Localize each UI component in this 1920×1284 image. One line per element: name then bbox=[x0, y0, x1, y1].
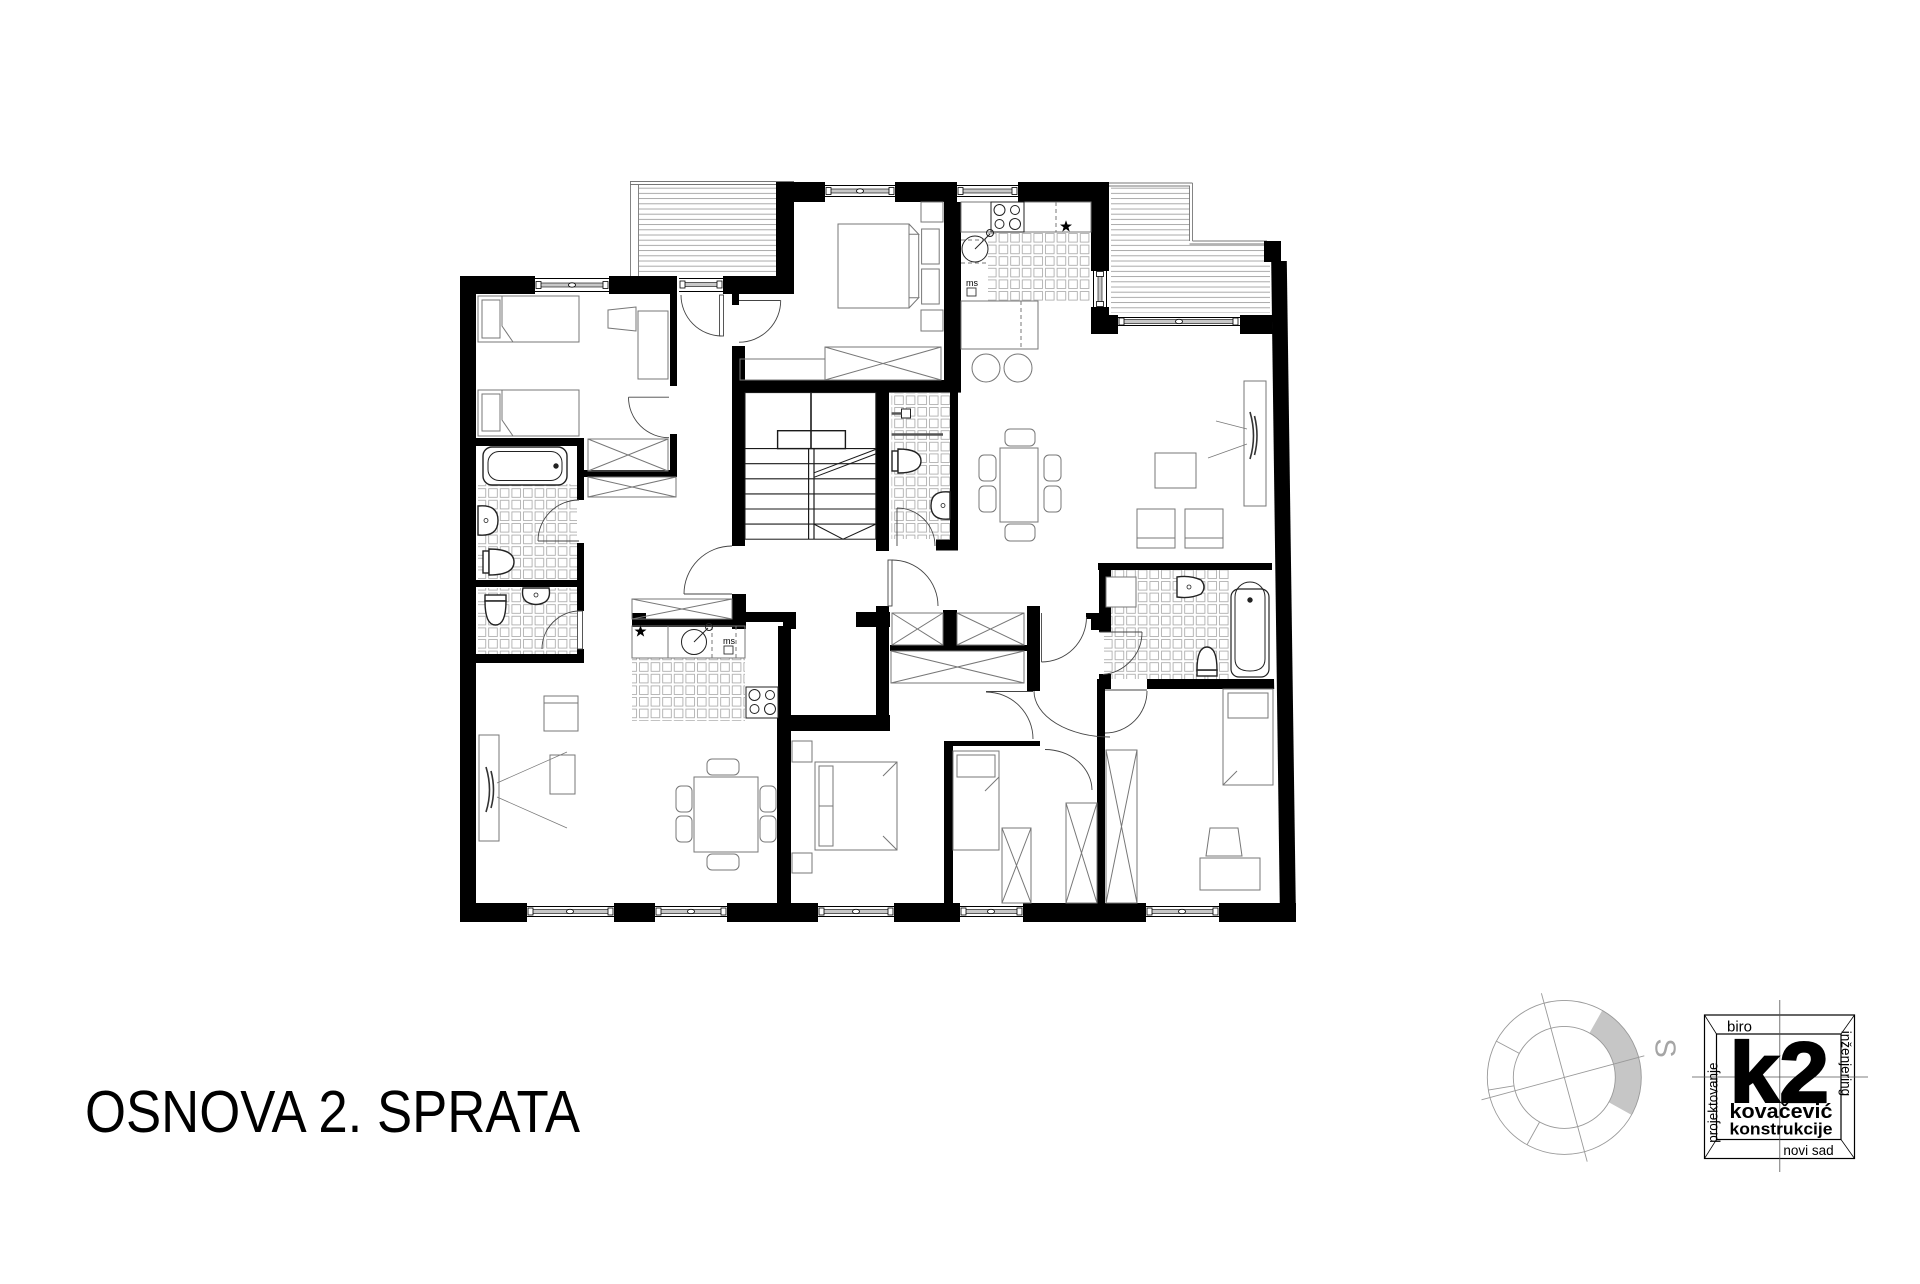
svg-text:konstrukcije: konstrukcije bbox=[1730, 1120, 1833, 1139]
svg-text:ms: ms bbox=[723, 636, 735, 646]
svg-text:biro: biro bbox=[1727, 1019, 1752, 1036]
svg-text:novi sad: novi sad bbox=[1783, 1143, 1833, 1158]
svg-text:inženjering: inženjering bbox=[1839, 1031, 1854, 1096]
svg-text:projektovanje: projektovanje bbox=[1706, 1062, 1721, 1142]
svg-text:S: S bbox=[1648, 1038, 1680, 1057]
svg-text:OSNOVA 2. SPRATA: OSNOVA 2. SPRATA bbox=[85, 1079, 581, 1145]
svg-text:ms: ms bbox=[966, 278, 978, 288]
